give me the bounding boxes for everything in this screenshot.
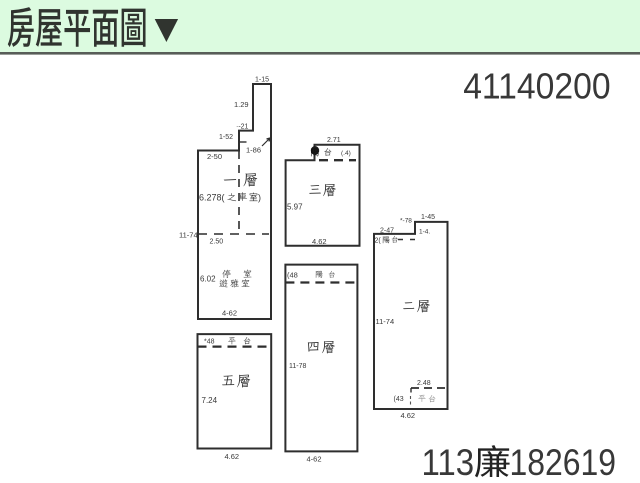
- svg-text:11-78: 11-78: [289, 363, 306, 370]
- svg-text:7.24: 7.24: [202, 396, 218, 405]
- svg-text:*48: *48: [204, 339, 215, 346]
- svg-text:1-45: 1-45: [421, 214, 435, 221]
- svg-text:5.97: 5.97: [287, 203, 303, 212]
- svg-text:1-15: 1-15: [255, 77, 269, 84]
- svg-text:182619: 182619: [510, 443, 616, 478]
- svg-text:(48: (48: [287, 271, 298, 280]
- svg-text:2-50: 2-50: [207, 152, 222, 161]
- svg-text:6.02: 6.02: [200, 275, 216, 284]
- svg-text:11-74: 11-74: [179, 231, 198, 240]
- svg-text:113: 113: [422, 442, 475, 478]
- svg-text:1-52: 1-52: [219, 134, 233, 141]
- svg-text:2.48: 2.48: [417, 380, 431, 387]
- svg-text:4.62: 4.62: [225, 452, 240, 461]
- svg-text:4.62: 4.62: [401, 411, 416, 420]
- svg-text:·-21: ·-21: [236, 124, 249, 131]
- svg-text:4-62: 4-62: [307, 455, 322, 464]
- svg-text:(.4): (.4): [341, 150, 351, 157]
- svg-text:11-74: 11-74: [376, 317, 395, 326]
- svg-text:*-78: *-78: [400, 218, 412, 225]
- svg-text:1.29: 1.29: [234, 100, 249, 109]
- svg-text:4.62: 4.62: [312, 237, 327, 246]
- svg-text:2.50: 2.50: [210, 239, 224, 246]
- svg-text:2.71: 2.71: [327, 137, 341, 144]
- svg-text:2-47: 2-47: [380, 228, 394, 235]
- svg-text:1-4.: 1-4.: [419, 229, 430, 236]
- svg-text:41140200: 41140200: [463, 66, 610, 106]
- svg-text:6.278(: 6.278(: [199, 193, 225, 203]
- svg-text:(43: (43: [394, 396, 404, 403]
- svg-text:4-62: 4-62: [222, 309, 237, 318]
- svg-text:室): 室): [249, 192, 261, 203]
- svg-text:1-86: 1-86: [246, 146, 261, 155]
- svg-text:2(: 2(: [375, 238, 382, 245]
